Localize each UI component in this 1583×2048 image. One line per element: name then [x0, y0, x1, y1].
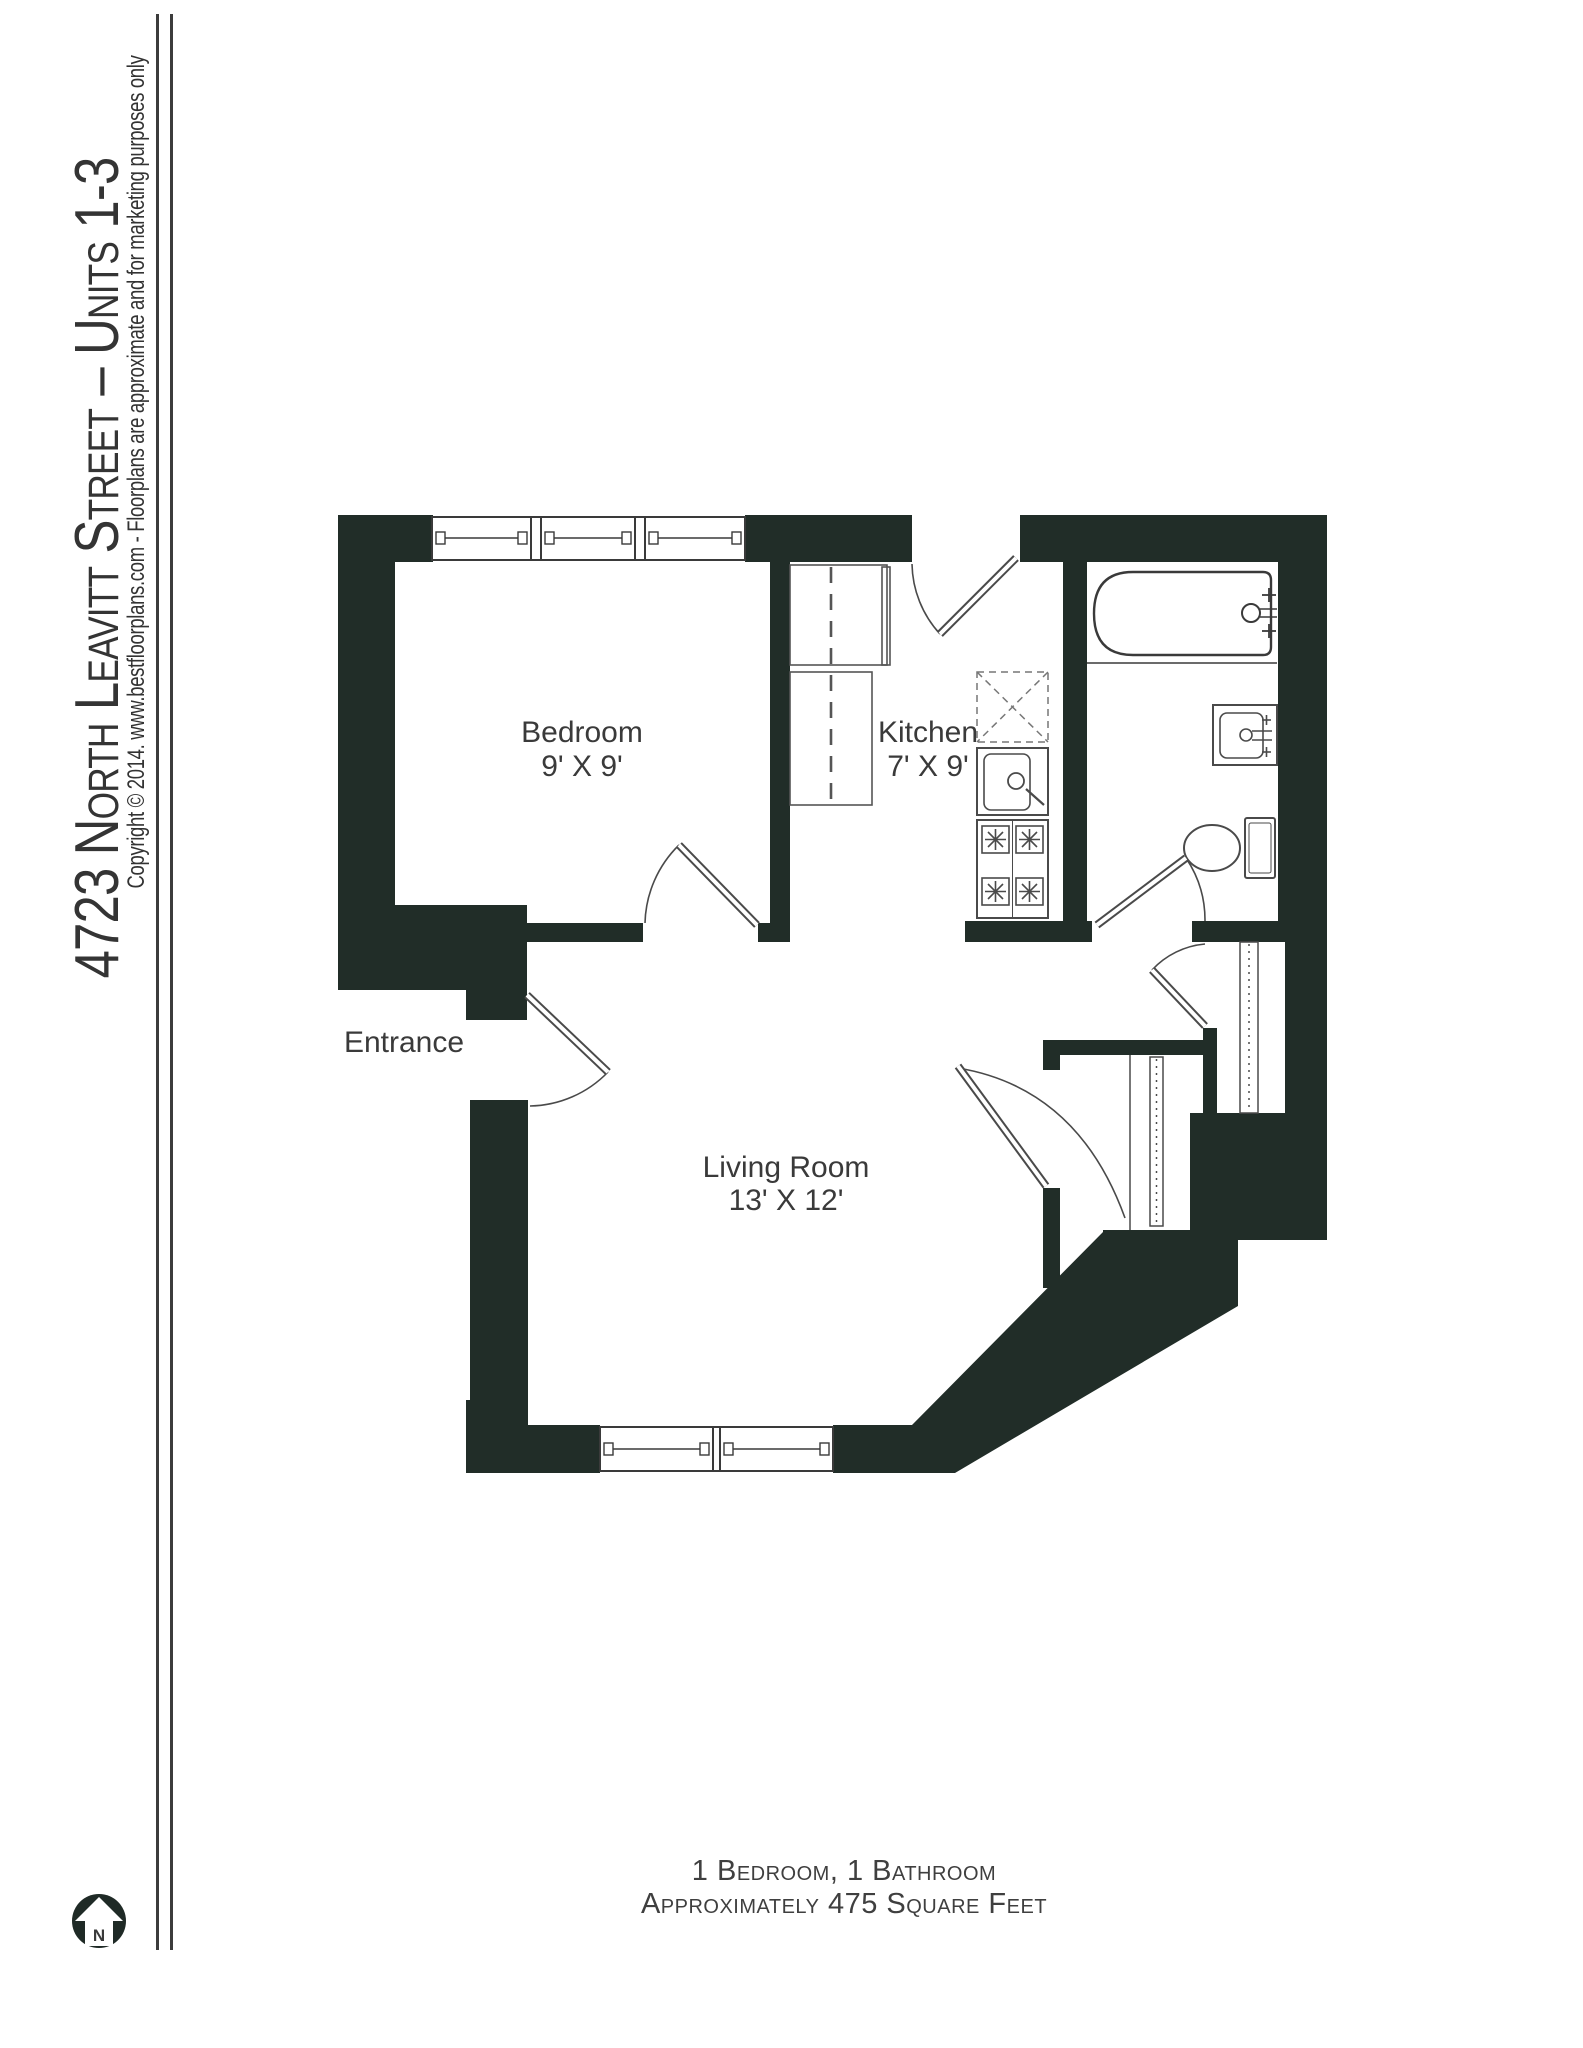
kitchen-dims: 7' X 9': [887, 750, 969, 783]
door-closet-lower: [958, 1066, 1125, 1218]
bathtub: [1087, 572, 1277, 663]
toilet: [1184, 818, 1275, 878]
kitchen-counter: [977, 672, 1048, 742]
kitchen-sink: [977, 748, 1048, 815]
bedroom-label: Bedroom: [521, 716, 643, 749]
north-arrow-label: N: [93, 1926, 105, 1945]
caption-line1: 1 Bedroom, 1 Bathroom: [344, 1855, 1344, 1888]
kitchen-closets: [790, 565, 890, 805]
living-room-dims: 13' X 12': [729, 1184, 844, 1217]
floorplan-page: 4723 North Leavitt Street – Units 1-3 Co…: [0, 0, 1583, 2048]
door-bathroom: [1097, 858, 1205, 925]
entrance-label: Entrance: [344, 1026, 464, 1059]
living-room-windows: [600, 1427, 833, 1471]
closet-shelf-upper: [1240, 942, 1258, 1113]
door-closet-upper: [1152, 944, 1205, 1026]
bathroom-sink: [1213, 705, 1277, 765]
door-kitchen: [912, 558, 1016, 634]
door-entrance: [527, 995, 608, 1106]
closet-shelf-lower: [1130, 1055, 1163, 1230]
bedroom-windows: [432, 517, 745, 560]
door-bedroom: [645, 845, 757, 925]
floor-plan-drawing: Bedroom 9' X 9' Kitchen 7' X 9' Living R…: [0, 0, 1583, 2048]
kitchen-label: Kitchen: [878, 716, 978, 749]
stove: [977, 820, 1048, 918]
caption-line2: Approximately 475 Square Feet: [344, 1888, 1344, 1921]
living-room-label: Living Room: [703, 1151, 870, 1184]
north-arrow-icon: N: [72, 1894, 126, 1948]
bedroom-dims: 9' X 9': [541, 750, 623, 783]
plan-caption: 1 Bedroom, 1 Bathroom Approximately 475 …: [344, 1855, 1344, 1921]
